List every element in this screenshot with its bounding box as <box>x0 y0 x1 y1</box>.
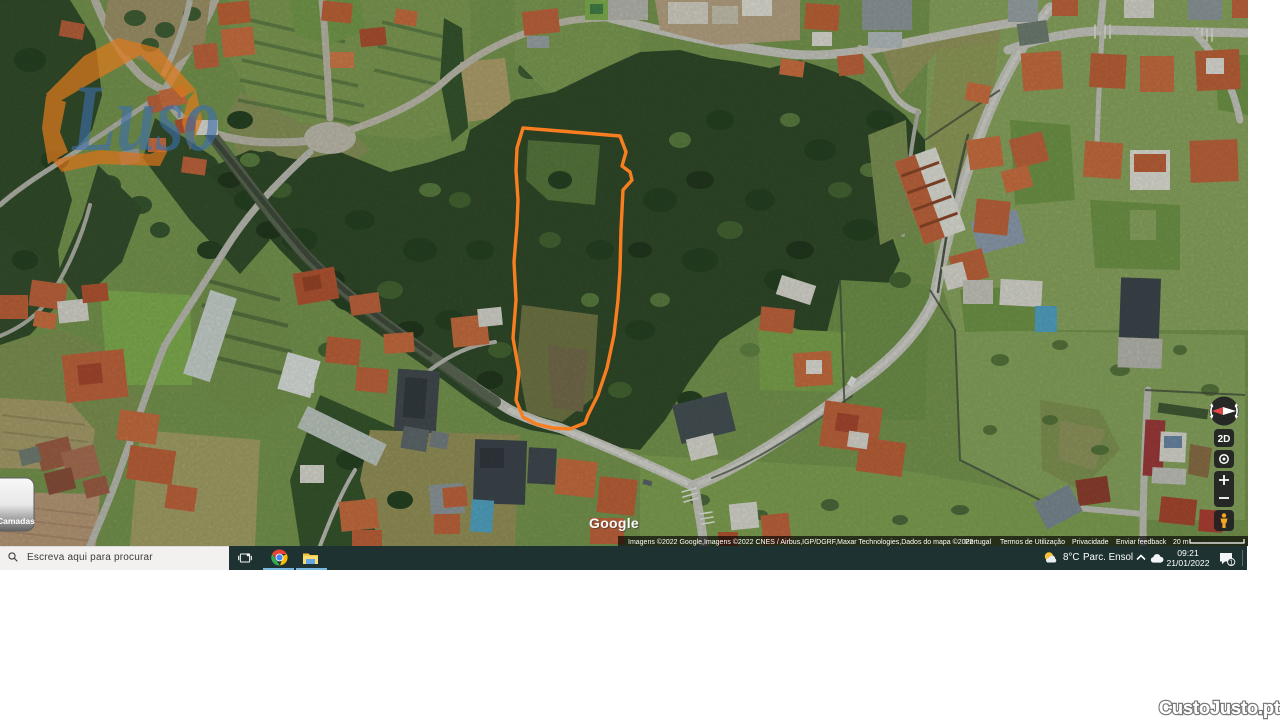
svg-text:Imagens ©2022 Google,Imagens ©: Imagens ©2022 Google,Imagens ©2022 CNES … <box>628 538 973 546</box>
svg-text:Privacidade: Privacidade <box>1072 539 1109 546</box>
svg-text:2D: 2D <box>1218 434 1231 445</box>
svg-text:20 m: 20 m <box>1173 539 1189 546</box>
svg-text:Portugal: Portugal <box>965 539 992 546</box>
svg-text:1: 1 <box>1229 560 1233 567</box>
svg-text:Termos de Utilização: Termos de Utilização <box>1000 539 1065 546</box>
svg-text:Google: Google <box>589 515 639 531</box>
svg-text:Luso: Luso <box>71 65 220 171</box>
svg-text:Enviar feedback: Enviar feedback <box>1116 539 1167 546</box>
svg-text:Camadas: Camadas <box>0 516 35 526</box>
